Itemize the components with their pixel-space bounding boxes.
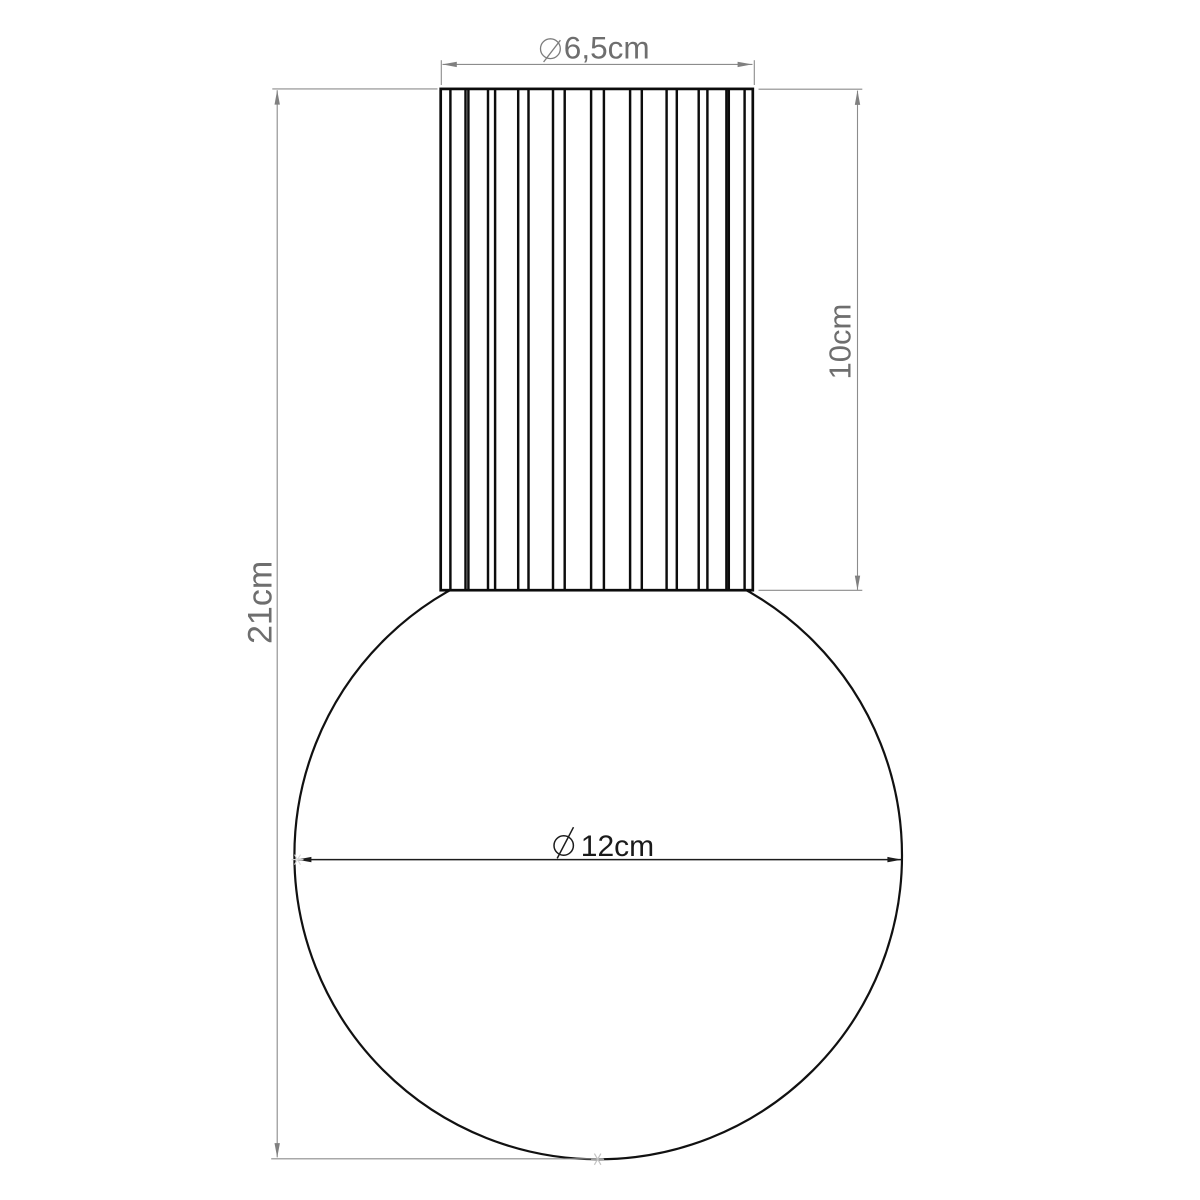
svg-text:6,5cm: 6,5cm bbox=[564, 29, 650, 65]
svg-text:10cm: 10cm bbox=[823, 304, 858, 380]
svg-text:12cm: 12cm bbox=[581, 830, 654, 863]
svg-text:21cm: 21cm bbox=[242, 561, 280, 644]
